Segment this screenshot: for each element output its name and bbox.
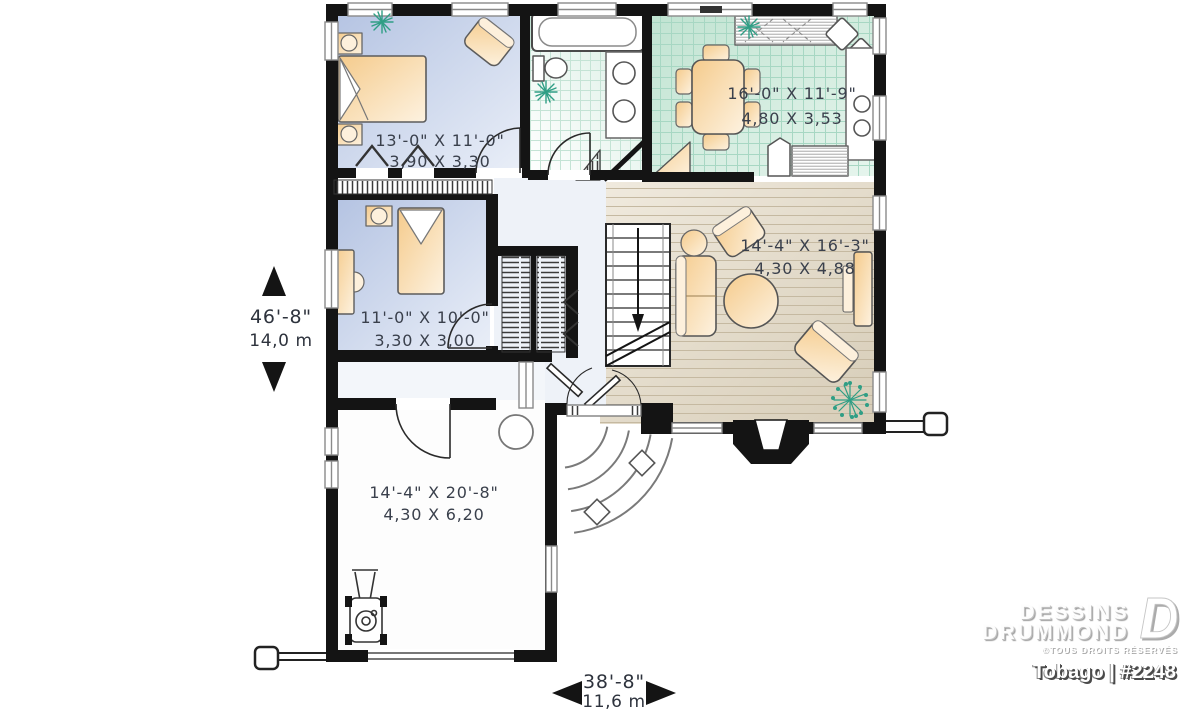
porch-post	[255, 647, 278, 669]
window	[558, 3, 616, 16]
staircase	[606, 224, 670, 366]
brand-logo: DESSINS DRUMMOND ©TOUS DROITS RÉSERVÉS T…	[982, 594, 1178, 684]
living-size-imperial: 14'-4" X 16'-3"	[740, 236, 869, 255]
garage-size-imperial: 14'-4" X 20'-8"	[369, 483, 498, 502]
window	[672, 423, 722, 433]
window	[452, 3, 508, 16]
stove-burner	[854, 120, 870, 136]
nightstand-2	[366, 206, 392, 226]
window	[325, 461, 338, 488]
bed-2	[398, 208, 444, 294]
bathtub	[532, 13, 644, 51]
curved-steps	[565, 427, 672, 533]
brand-name: DESSINS DRUMMOND	[982, 603, 1129, 642]
bedroom-2-size-metric: 3,30 X 3,00	[374, 331, 475, 350]
bedroom-2-size-imperial: 11'-0" X 10'-0"	[360, 308, 489, 327]
window	[546, 546, 557, 592]
copyright-text: ©TOUS DROITS RÉSERVÉS	[982, 645, 1178, 655]
bedroom-1-size-imperial: 13'-0" X 11'-0"	[375, 131, 504, 150]
fireplace	[733, 420, 809, 464]
toilet	[533, 56, 567, 81]
wall-garage-right	[545, 403, 557, 655]
corridor-floor	[332, 362, 545, 400]
step-planter	[584, 499, 609, 524]
nightstand-1a	[336, 33, 362, 54]
window	[873, 372, 886, 412]
width-imperial: 38'-8"	[583, 671, 645, 693]
dining-chair	[676, 69, 692, 94]
dining-size-imperial: 16'-0" X 11'-9"	[727, 84, 856, 103]
depth-imperial: 46'-8"	[250, 306, 312, 328]
step-planter	[629, 450, 654, 475]
arrow-down-icon	[262, 362, 286, 392]
porch-post	[924, 413, 947, 435]
brand-name-line1: DESSINS	[982, 603, 1129, 622]
width-metric: 11,6 m	[582, 692, 645, 711]
width-dimension: 38'-8" 11,6 m	[552, 671, 676, 711]
bed-1	[338, 56, 426, 122]
round-table-entry	[499, 415, 533, 449]
arrow-right-icon	[646, 681, 676, 705]
round-ottoman	[724, 274, 778, 328]
dining-chair	[676, 102, 692, 127]
depth-dimension: 46'-8" 14,0 m	[249, 266, 312, 392]
wall-left	[326, 4, 338, 662]
plant-icon	[535, 81, 557, 103]
floor-plan-page: 13'-0" X 11'-0" 3,90 X 3,30 16'-0" X 11'…	[0, 0, 1200, 711]
arrow-left-icon	[552, 681, 582, 705]
window	[348, 3, 392, 16]
side-table	[681, 230, 707, 256]
plan-model-number: Tobago | #2248	[982, 661, 1178, 684]
window	[814, 423, 862, 433]
window	[325, 22, 338, 60]
window	[873, 96, 886, 140]
bedroom-1-size-metric: 3,90 X 3,30	[389, 152, 490, 171]
nightstand-1b	[336, 124, 362, 145]
plant-icon	[371, 11, 393, 33]
window	[325, 250, 338, 308]
refrigerator	[768, 138, 790, 176]
window	[873, 196, 886, 230]
window	[833, 3, 867, 16]
drummond-d-icon	[1136, 594, 1178, 642]
window	[668, 3, 752, 16]
kitchen-counter-bottom	[792, 146, 848, 176]
dining-size-metric: 4,80 X 3,53	[741, 109, 842, 128]
depth-metric: 14,0 m	[249, 331, 312, 351]
dining-chair	[703, 134, 729, 150]
bathroom-vanity	[606, 52, 644, 138]
plant-icon	[738, 16, 760, 38]
garage-door	[368, 649, 514, 664]
garage-size-metric: 4,30 X 6,20	[383, 505, 484, 524]
brand-name-line2: DRUMMOND	[982, 623, 1129, 642]
sidelight-window	[519, 362, 533, 408]
arrow-up-icon	[262, 266, 286, 296]
window	[873, 18, 886, 54]
dining-chair	[703, 45, 729, 61]
sofa	[676, 256, 716, 336]
living-size-metric: 4,30 X 4,88	[754, 259, 855, 278]
window	[325, 428, 338, 455]
